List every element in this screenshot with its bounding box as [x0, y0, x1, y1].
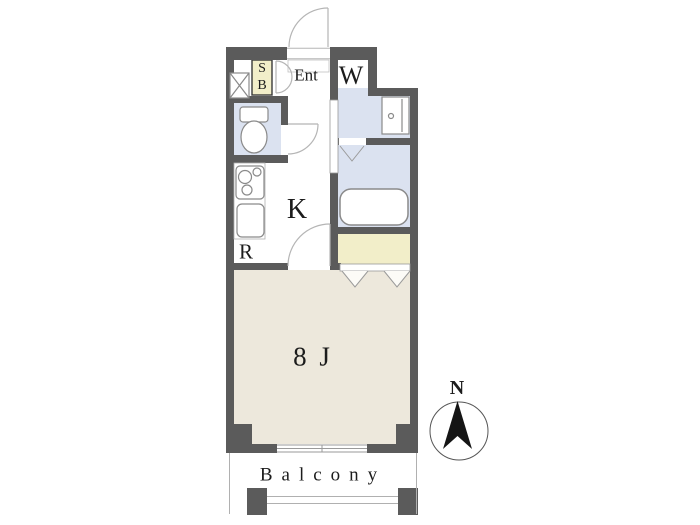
- bathroom-door-opening: [339, 138, 366, 145]
- label-entrance: Ent: [294, 67, 318, 84]
- kitchen-door-opening: [288, 263, 330, 270]
- balcony-pillar-right: [398, 488, 418, 515]
- corner-pillar-bottom-left: [226, 424, 252, 453]
- corner-pillar-bottom-right: [396, 424, 418, 453]
- bathtub-icon: [340, 189, 408, 225]
- label-balcony: Balcony: [260, 466, 386, 485]
- label-compass-north: N: [450, 378, 464, 398]
- closet-door-track: [340, 264, 410, 271]
- label-shoe-box-s: S: [258, 62, 266, 76]
- stove-icon: [236, 166, 264, 199]
- label-kitchen: K: [287, 196, 307, 224]
- north-compass-icon: [430, 401, 488, 460]
- pipe-space-icon: [230, 73, 249, 98]
- label-washer: W: [339, 63, 364, 89]
- toilet-icon: [240, 107, 268, 153]
- label-main-room: 8 J: [293, 344, 333, 371]
- toilet-door-icon: [288, 124, 318, 154]
- label-shoe-box-b: B: [257, 79, 266, 93]
- kitchen-sink-icon: [237, 204, 264, 237]
- toilet-door-opening: [281, 125, 288, 155]
- entrance-opening: [287, 47, 330, 60]
- balcony-pillar-left: [247, 488, 267, 515]
- closet-floor: [338, 234, 410, 266]
- washer-space-floor: [338, 88, 368, 138]
- floorplan-canvas: Ent S B W K R 8 J Balcony N: [0, 0, 700, 525]
- sliding-window-icon: [277, 444, 367, 453]
- label-refrigerator: R: [239, 242, 253, 263]
- entrance-door-icon: [289, 8, 328, 47]
- washbasin-icon: [382, 97, 409, 134]
- kitchen-door-icon: [288, 224, 330, 266]
- washroom-opening: [330, 100, 338, 173]
